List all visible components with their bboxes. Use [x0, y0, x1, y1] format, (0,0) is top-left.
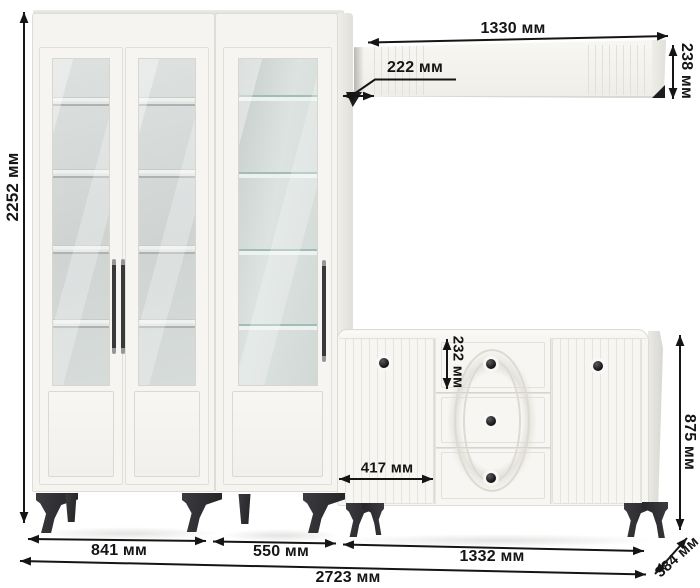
display-cabinet-door: [223, 47, 332, 485]
bookcase-right-door: [125, 47, 209, 485]
drawer-gap: [436, 392, 550, 394]
wall-shelf-edge: [354, 96, 664, 98]
bookcase-right-door-panel: [134, 391, 200, 477]
knob-drawer-2: [486, 416, 496, 426]
bookcase-door-handle: [112, 259, 116, 354]
glass-shelf: [239, 249, 317, 255]
bookcase-left-door: [39, 47, 123, 485]
wall-shelf-shadow: [354, 47, 364, 94]
wood-shelf: [139, 245, 195, 254]
wood-shelf: [53, 319, 109, 328]
label-total-height: 2252 мм: [3, 152, 23, 221]
floor-shadow: [342, 534, 657, 547]
knob-right-door: [593, 361, 603, 371]
display-cabinet-glass: [238, 58, 318, 386]
leg: [642, 502, 668, 538]
label-display-cabinet-width: 550 мм: [253, 543, 309, 561]
wood-shelf: [53, 97, 109, 106]
label-drawer-height: 232 мм: [450, 336, 467, 389]
knob-drawer-1: [486, 359, 496, 369]
wood-shelf: [139, 169, 195, 178]
glass-shelf: [239, 324, 317, 330]
floor-shadow: [222, 529, 340, 542]
sideboard: [337, 329, 649, 506]
glass-shelf: [239, 172, 317, 178]
sideboard-side: [648, 331, 663, 504]
wall-shelf-fluting: [582, 45, 646, 95]
wood-shelf: [53, 245, 109, 254]
display-cabinet: [215, 13, 338, 492]
display-cabinet-handle: [322, 260, 326, 362]
leg: [303, 493, 345, 533]
door-drawer-seam: [550, 338, 552, 504]
label-total-width: 2723 мм: [315, 569, 380, 587]
floor-shadow: [38, 527, 218, 540]
label-sideboard-width: 1332 мм: [459, 548, 524, 566]
wood-shelf: [53, 169, 109, 178]
bookcase-door-handle: [121, 259, 125, 354]
drawer-gap: [436, 447, 550, 449]
label-wall-shelf-width: 1330 мм: [480, 20, 545, 38]
label-sideboard-height: 875 мм: [680, 414, 698, 470]
bookcase-left-glass: [52, 58, 110, 386]
knob-drawer-3: [486, 473, 496, 483]
wood-shelf: [139, 319, 195, 328]
furniture-dimension-diagram: 2252 мм 1330 мм 238 мм 222 мм 232 мм 417…: [0, 0, 700, 588]
display-cabinet-door-panel: [232, 391, 323, 477]
label-sideboard-depth: 384 мм: [652, 533, 700, 581]
sideboard-left-door: [345, 338, 434, 504]
leg: [362, 503, 384, 535]
leg: [64, 494, 78, 522]
label-bookcase-width: 841 мм: [91, 542, 147, 560]
label-sideboard-door-width: 417 мм: [361, 460, 414, 477]
label-wall-shelf-depth: 222 мм: [387, 59, 443, 77]
glass-shelf: [239, 95, 317, 101]
label-wall-shelf-height: 238 мм: [677, 43, 695, 99]
wood-shelf: [139, 97, 195, 106]
bookcase: [32, 13, 215, 492]
bookcase-left-door-panel: [48, 391, 114, 477]
bookcase-right-glass: [138, 58, 196, 386]
knob-left-door: [379, 358, 389, 368]
leg: [237, 494, 252, 524]
